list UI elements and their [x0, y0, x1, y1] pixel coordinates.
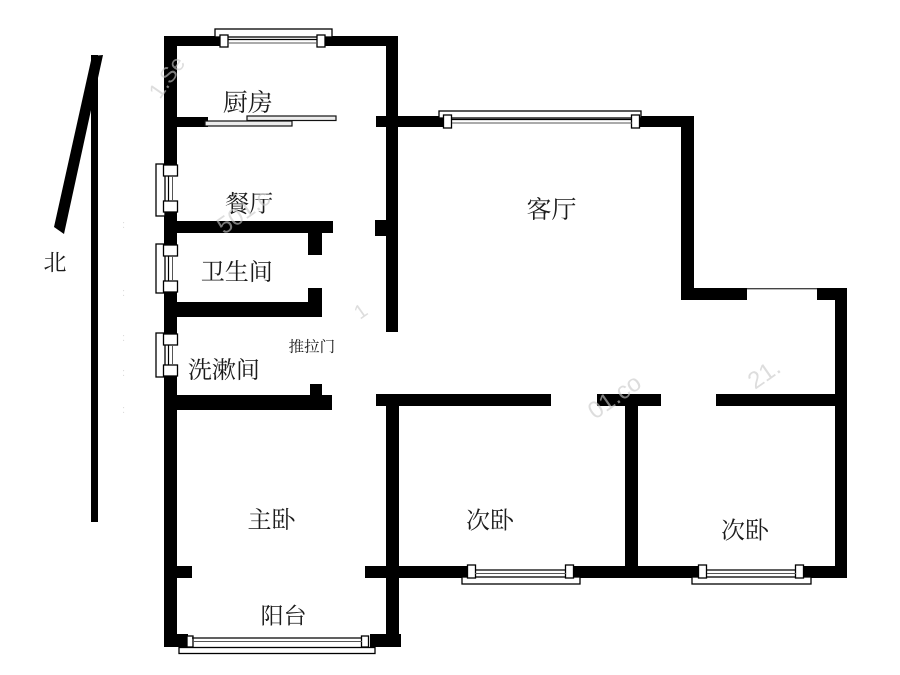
- svg-text:1: 1: [350, 300, 372, 324]
- svg-text::: :: [122, 219, 125, 231]
- svg-text::: :: [122, 332, 125, 344]
- svg-text::: :: [122, 287, 125, 299]
- svg-text:21.: 21.: [743, 354, 786, 395]
- svg-text::: :: [122, 404, 125, 416]
- svg-text:1.Se: 1.Se: [144, 51, 190, 102]
- svg-text::: :: [122, 367, 125, 379]
